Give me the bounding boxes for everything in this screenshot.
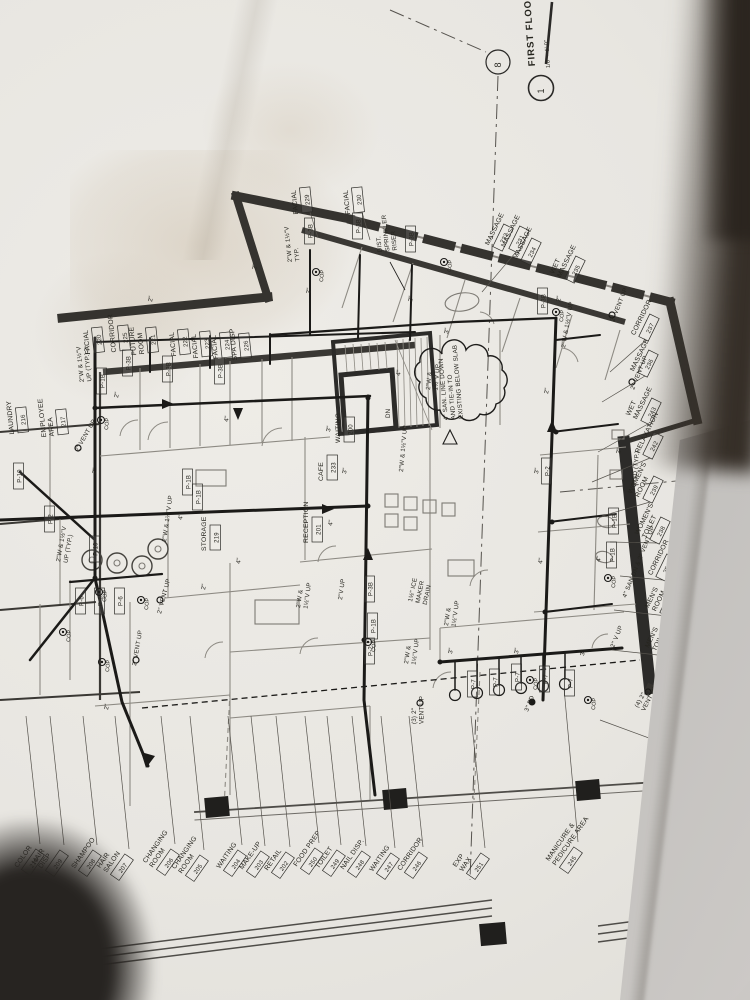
pipe-size-label: 4" (235, 557, 243, 564)
svg-text:P-3B: P-3B (369, 582, 375, 596)
detail-number: 1 (536, 88, 546, 93)
svg-text:COP: COP (144, 597, 151, 610)
fixture-tag: P-2 (45, 506, 55, 532)
svg-text:P-6: P-6 (119, 596, 125, 606)
fixture-tag: P-3B (215, 358, 225, 384)
svg-text:200: 200 (349, 424, 355, 435)
plumbing-note: 2"W & 1½"V UP (560, 301, 575, 348)
fixture-tag: P-3B (365, 576, 375, 602)
svg-text:2"W & 1½"V UP: 2"W & 1½"V UP (161, 495, 174, 542)
svg-text:COP: COP (102, 589, 109, 602)
svg-text:P-3B: P-3B (357, 219, 363, 233)
columns (204, 704, 732, 950)
svg-text:233: 233 (332, 462, 338, 473)
svg-text:P-7: P-7 (516, 672, 522, 682)
svg-text:P-1B: P-1B (197, 490, 203, 504)
cleanout-symbol: COP (605, 575, 619, 589)
cleanout-symbol: COP (527, 677, 541, 691)
svg-text:2": 2" (91, 467, 99, 474)
pipe-size-label: 2" (407, 295, 415, 302)
svg-text:COP: COP (105, 659, 112, 672)
fixture-tag: P-1B (97, 368, 107, 394)
pipe-size-label: 2" (251, 263, 259, 270)
svg-text:VENT UP: VENT UP (419, 696, 426, 724)
room-label: HAIRSALON207 (96, 844, 133, 881)
svg-text:P-3B: P-3B (127, 356, 133, 370)
svg-text:FACIAL: FACIAL (343, 190, 353, 215)
svg-text:201: 201 (317, 524, 323, 535)
pipe-size-label: 3" (579, 649, 587, 656)
room-label: EXPWAX251 (452, 843, 489, 880)
svg-text:1½"V UP: 1½"V UP (410, 638, 421, 665)
svg-text:P-7: P-7 (569, 678, 575, 688)
plumbing-note: (3) 2"VENT UP (411, 696, 426, 724)
fixture-tag: P-1B (607, 542, 617, 568)
leader-line (50, 716, 64, 845)
fixture-tag: P-3B (538, 288, 548, 314)
svg-text:P-1B: P-1B (187, 475, 193, 489)
pipe-size-label: 3" (513, 647, 521, 654)
svg-text:WAITING: WAITING (335, 413, 342, 443)
svg-text:4": 4" (595, 555, 603, 562)
pipe-size-label: 2" (83, 345, 91, 352)
room-label: CORRIDOR252 (647, 539, 681, 582)
svg-text:3": 3" (579, 649, 587, 656)
svg-text:4": 4" (177, 513, 185, 520)
plumbing-note: DN (385, 409, 392, 418)
svg-text:2"V UP: 2"V UP (337, 578, 347, 600)
room-label: CORRIDOR225 (107, 312, 130, 352)
svg-text:229: 229 (305, 194, 312, 206)
svg-text:2"W & 1½"V: 2"W & 1½"V (283, 225, 294, 262)
svg-text:4": 4" (537, 557, 545, 564)
svg-text:4": 4" (395, 369, 403, 376)
fixture-tag: P-7 (540, 666, 550, 692)
leader-line (327, 716, 341, 845)
svg-text:COP: COP (559, 309, 566, 322)
pipe-size-label: 3" (325, 425, 333, 432)
svg-text:P-7: P-7 (472, 679, 478, 689)
room-label: WAITING200 (335, 413, 355, 443)
svg-text:COP: COP (447, 259, 454, 272)
exterior-walls (62, 196, 698, 820)
plumbing-note: 2"W & 1½"V UP (161, 495, 174, 542)
svg-text:RECEPTION: RECEPTION (303, 502, 310, 543)
svg-text:DN: DN (385, 409, 392, 418)
svg-text:P-3B: P-3B (542, 294, 548, 308)
fixture-tag: P-3B (163, 356, 173, 382)
leader-line (190, 716, 204, 850)
svg-text:COP: COP (533, 677, 540, 690)
svg-text:FACIAL: FACIAL (291, 190, 301, 215)
plumbing-note: 2"W & 1½"VTYP. (283, 225, 301, 263)
svg-text:2": 2" (147, 295, 155, 302)
room-label: FACIAL222 (168, 329, 190, 357)
fixture-tag: P-3B (123, 350, 133, 376)
svg-text:2": 2" (83, 345, 91, 352)
pipe-size-label: 2" (91, 467, 99, 474)
leader-line (251, 716, 265, 846)
fixture-tag: P-3B (406, 226, 416, 252)
svg-text:2": 2" (103, 703, 111, 710)
pipe-size-label: 4" (327, 519, 335, 526)
pipe-size-label: 4" (177, 513, 185, 520)
plan-labels: FACIAL220CORRIDOR225FUTUREROOM221FACIAL2… (6, 187, 694, 882)
svg-text:217: 217 (61, 416, 68, 428)
leader-line (564, 688, 578, 842)
pipe-size-label: 4" (395, 369, 403, 376)
fixture-tag: P-10 (90, 536, 100, 562)
fixture-tag: P-1B (183, 469, 193, 495)
leader-line (161, 716, 175, 844)
pipe-size-label: 2" (305, 287, 313, 294)
svg-text:2" VENT UP: 2" VENT UP (156, 578, 172, 615)
plumbing-note: 2" VENT UP (131, 630, 144, 667)
pipe-size-label: 2" (555, 295, 563, 302)
pipe-size-label: 2" (147, 295, 155, 302)
svg-text:216: 216 (21, 414, 28, 426)
room-label: CAFE233 (318, 455, 338, 481)
svg-text:P-1B: P-1B (101, 374, 107, 388)
svg-text:COP: COP (66, 629, 73, 642)
pipe-size-label: 3" (447, 647, 455, 654)
svg-text:(3) 2": (3) 2" (411, 708, 418, 724)
svg-text:2" V UP: 2" V UP (609, 625, 624, 649)
svg-text:P-1B: P-1B (372, 619, 378, 633)
svg-text:P-3B: P-3B (309, 224, 315, 238)
svg-text:P-1B: P-1B (611, 548, 617, 562)
svg-text:3": 3" (513, 647, 521, 654)
room-label: FACIAL223 (190, 331, 212, 359)
fixture-tag: P-7 (512, 664, 522, 690)
pipe-size-label: 4" (223, 415, 231, 422)
svg-text:230: 230 (357, 194, 364, 206)
svg-text:1½"V UP: 1½"V UP (302, 582, 313, 609)
svg-text:2": 2" (251, 263, 259, 270)
room-label: WAITING247 (369, 844, 402, 880)
svg-text:220: 220 (97, 334, 104, 346)
fixture-tag: P-6 (115, 588, 125, 614)
fixture-tag: P-3B (353, 213, 363, 239)
svg-text:COP: COP (104, 417, 111, 430)
titleblock: 1 8 FIRST FLOOR — 1/8" = 1'-0" (486, 0, 554, 101)
pipe-size-label: 3" (341, 467, 349, 474)
room-label: HAIRDISP209 (31, 840, 68, 877)
pipe-size-label: 2" (543, 387, 551, 394)
cleanout-symbol: COP (313, 269, 327, 283)
leader-line (381, 716, 395, 848)
fixture-tag: P-1B (193, 484, 203, 510)
svg-text:P-3B: P-3B (167, 362, 173, 376)
svg-text:FACIAL: FACIAL (191, 334, 201, 359)
pipe-size-label: 2" (113, 391, 121, 398)
plumbing-note: 4" SAN. LINE DOWNAND TIE-IN TOEXISTING B… (437, 345, 465, 421)
svg-text:P-10: P-10 (18, 469, 24, 483)
room-label: CORRIDOR237 (630, 299, 664, 342)
svg-text:4": 4" (235, 557, 243, 564)
svg-text:P-6: P-6 (80, 596, 86, 606)
svg-text:221: 221 (151, 334, 158, 346)
fixture-tag: P-7 (565, 670, 575, 696)
svg-text:226: 226 (244, 340, 251, 352)
svg-text:P-7: P-7 (494, 677, 500, 687)
room-label: TOILET249 (315, 845, 346, 877)
fixture-tag: P-3B (305, 218, 315, 244)
svg-text:ROOM: ROOM (137, 332, 146, 355)
svg-text:3": 3" (341, 467, 349, 474)
room-label: NAIL DISP.248 (340, 838, 376, 878)
svg-text:COP: COP (371, 639, 378, 652)
svg-text:2"W & 1½"V UP: 2"W & 1½"V UP (560, 301, 575, 348)
pipe-size-label: 2" (615, 447, 623, 454)
svg-text:P-2: P-2 (546, 466, 552, 476)
fixture-tag: P-6 (76, 588, 86, 614)
fixture-tag: P-2 (542, 458, 552, 484)
plumbing-note: 2"W &1½"V UP (443, 599, 461, 627)
leader-line (115, 716, 129, 849)
svg-text:3": 3" (443, 327, 451, 334)
fixture-tag: P-7 (468, 671, 478, 697)
leader-line (83, 716, 97, 845)
svg-text:2": 2" (200, 583, 208, 590)
cleanout-symbol: COP (60, 629, 74, 643)
svg-text:2": 2" (305, 287, 313, 294)
pipe-size-label: 2" (103, 703, 111, 710)
fixture-tag: P-1B (368, 613, 378, 639)
pipe-size-label: 4" (537, 557, 545, 564)
room-label: RETAIL202 (264, 847, 295, 879)
room-label: STORAGE219 (201, 516, 221, 551)
grid-bubble-number: 8 (493, 62, 503, 67)
leader-line (26, 716, 40, 844)
leader-line (612, 650, 667, 656)
svg-text:2": 2" (407, 295, 415, 302)
grid-lines (390, 10, 750, 880)
plumbing-note: DIST.SPRINKLERRISER (373, 213, 399, 252)
svg-text:COP: COP (591, 697, 598, 710)
svg-text:P-10: P-10 (94, 542, 100, 556)
sheet-title: FIRST FLOOR — (521, 0, 538, 67)
plumbing-note: 2"W &1½"V UP (403, 637, 421, 665)
cleanout-symbol: COP (138, 597, 152, 611)
svg-text:2": 2" (543, 387, 551, 394)
svg-text:2": 2" (113, 391, 121, 398)
svg-text:CAFE: CAFE (318, 462, 325, 481)
room-label: MEN'SROOM240 (644, 583, 680, 618)
cleanout-symbol: COP (585, 697, 599, 711)
pipe-size-label: 2" (200, 583, 208, 590)
svg-text:3": 3" (325, 425, 333, 432)
fixture-tag: P-10 (14, 463, 24, 489)
plumbing-note: 2"W & 1½"VUP (TYP.) (55, 525, 76, 564)
svg-text:3": 3" (447, 647, 455, 654)
svg-text:222: 222 (183, 336, 190, 348)
room-label: EMPLOYEEAREA217 (37, 396, 68, 438)
blueprint-photo: 1 8 FIRST FLOOR — 1/8" = 1'-0" FACIAL220… (0, 0, 750, 1000)
room-label: LAUNDRY216 (6, 399, 29, 435)
pipe-size-label: 3" (443, 327, 451, 334)
leader-line (352, 716, 366, 846)
flow-arrows (141, 399, 557, 768)
fixture-tag: P-1B (609, 508, 619, 534)
plumbing-note: 2" VENT UP (156, 578, 172, 615)
svg-text:FACIAL: FACIAL (169, 332, 179, 357)
room-label: CHANGINGROOM205 (171, 835, 215, 882)
svg-text:4": 4" (327, 519, 335, 526)
svg-text:P-3B: P-3B (410, 232, 416, 246)
svg-text:2": 2" (555, 295, 563, 302)
svg-text:4": 4" (223, 415, 231, 422)
svg-text:CORRIDOR: CORRIDOR (107, 314, 118, 353)
svg-text:TYP.: TYP. (293, 247, 301, 261)
leader-line (409, 716, 423, 847)
room-label: CORRIDOR246 (397, 836, 435, 879)
svg-text:P-1B: P-1B (613, 514, 619, 528)
svg-text:2" VENT UP: 2" VENT UP (131, 630, 144, 667)
room-label: SPA DISP226 (229, 327, 252, 361)
svg-text:STORAGE: STORAGE (201, 516, 208, 551)
svg-text:LAUNDRY: LAUNDRY (6, 400, 17, 435)
floorplan-drawing: 1 8 FIRST FLOOR — 1/8" = 1'-0" FACIAL220… (0, 0, 750, 1000)
pipe-size-label: 4" (595, 555, 603, 562)
svg-text:COP: COP (611, 575, 618, 588)
svg-text:1½"V UP: 1½"V UP (450, 600, 461, 627)
plumbing-note: 2"V UP (337, 578, 347, 600)
grid-bubble (486, 50, 510, 74)
leader-line (305, 716, 319, 843)
room-label: FACIAL229 (290, 187, 312, 215)
room-label: MANICURE &PEDICURE AREA245 (545, 811, 601, 874)
plumbing-note: 2" V UP (609, 625, 624, 649)
svg-text:COP: COP (319, 269, 326, 282)
svg-text:P-7: P-7 (544, 674, 550, 684)
svg-text:AREA: AREA (47, 417, 56, 437)
room-label: FACIAL230 (342, 187, 364, 215)
svg-text:219: 219 (215, 532, 221, 543)
fixture-tag: P-7 (490, 669, 500, 695)
svg-text:P-2: P-2 (49, 514, 55, 524)
svg-text:2": 2" (615, 447, 623, 454)
svg-text:3": 3" (533, 467, 541, 474)
plumbing-note: 2"W & 1½"V UP (398, 425, 409, 472)
room-label: MAKE-UP203 (239, 840, 274, 878)
pipe-size-label: 3" (533, 467, 541, 474)
svg-text:P-3B: P-3B (219, 364, 225, 378)
svg-text:2"W & 1½"V UP: 2"W & 1½"V UP (398, 425, 409, 472)
detail-bubble (529, 76, 554, 101)
leader-line (276, 716, 290, 847)
